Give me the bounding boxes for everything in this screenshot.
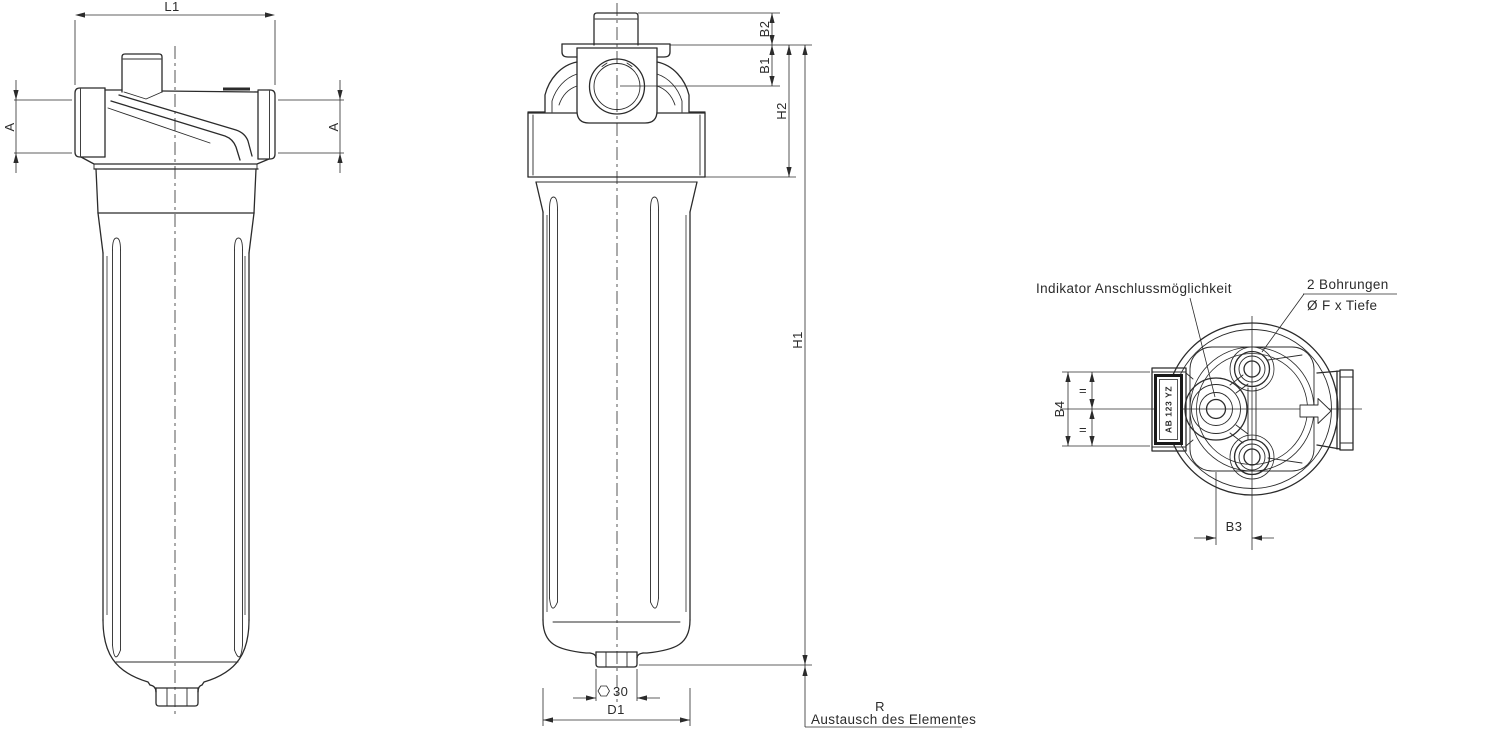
- note-bores-spec: Ø F x Tiefe: [1307, 298, 1377, 313]
- hex-symbol: [598, 686, 610, 696]
- dim-label-equal-lower: =: [1079, 422, 1087, 437]
- dim-h1: H1: [790, 45, 808, 665]
- note-indicator-text: Indikator Anschlussmöglichkeit: [1036, 281, 1232, 296]
- nameplate-text: AB 123 YZ: [1164, 386, 1174, 433]
- dim-a-right: A: [278, 80, 344, 173]
- top-view: AB 123 YZ B4 = =: [1036, 277, 1397, 550]
- dim-label-b3: B3: [1226, 519, 1243, 534]
- flow-direction-arrow: [1300, 399, 1331, 424]
- dim-h2: H2: [774, 45, 792, 177]
- dim-label-h2: H2: [774, 102, 789, 119]
- dim-label-equal-upper: =: [1079, 383, 1087, 398]
- inlet-port-block: AB 123 YZ: [1152, 368, 1193, 451]
- dim-label-b1: B1: [757, 57, 772, 74]
- dim-b1: B1: [757, 45, 775, 86]
- dim-label-l1: L1: [164, 0, 179, 14]
- dim-label-b4: B4: [1052, 401, 1067, 418]
- technical-drawing-filter: L1 A A: [0, 0, 1500, 732]
- top-tab: [223, 88, 250, 91]
- dim-label-a-right: A: [326, 122, 341, 131]
- dim-label-hex30: 30: [613, 684, 628, 699]
- dim-label-b2: B2: [757, 21, 772, 38]
- dim-b2: B2: [757, 13, 775, 45]
- dim-hex30: 30: [573, 669, 660, 701]
- note-bores-title: 2 Bohrungen: [1307, 277, 1389, 292]
- dim-label-h1: H1: [790, 331, 805, 348]
- side-view: L1 A A: [2, 0, 344, 716]
- dim-a-left: A: [2, 80, 72, 173]
- dim-r: R Austausch des Elementes: [802, 665, 976, 727]
- dim-label-d1: D1: [607, 702, 624, 717]
- front-view: B2 B1 H2 H1 R Austausch de: [528, 3, 976, 727]
- dim-label-a-left: A: [2, 122, 17, 131]
- note-bores: 2 Bohrungen Ø F x Tiefe: [1262, 277, 1397, 352]
- dim-b3: B3: [1194, 472, 1274, 545]
- note-element-replacement: Austausch des Elementes: [811, 712, 976, 727]
